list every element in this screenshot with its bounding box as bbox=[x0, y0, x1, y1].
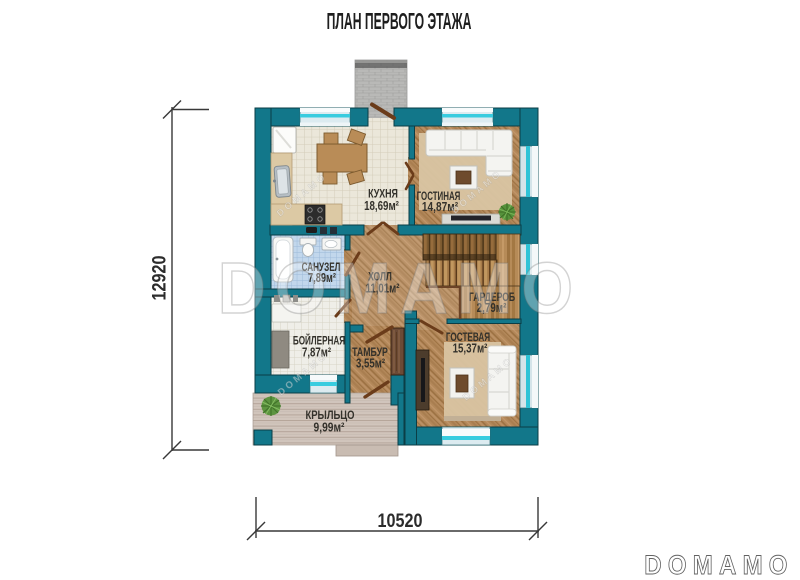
svg-text:КУХНЯ: КУХНЯ bbox=[368, 187, 398, 201]
svg-text:18,69м²: 18,69м² bbox=[364, 200, 399, 213]
svg-text:12920: 12920 bbox=[148, 255, 170, 300]
svg-text:3,55м²: 3,55м² bbox=[356, 357, 385, 370]
svg-text:9,99м²: 9,99м² bbox=[314, 422, 345, 435]
svg-text:DOMAMO: DOMAMO bbox=[218, 247, 582, 328]
svg-text:10520: 10520 bbox=[378, 510, 423, 532]
svg-text:КРЫЛЬЦО: КРЫЛЬЦО bbox=[305, 409, 354, 422]
svg-text:15,37м²: 15,37м² bbox=[453, 342, 488, 355]
svg-text:DOMAMO: DOMAMO bbox=[644, 551, 793, 580]
svg-text:ПЛАН ПЕРВОГО ЭТАЖА: ПЛАН ПЕРВОГО ЭТАЖА bbox=[327, 8, 472, 34]
